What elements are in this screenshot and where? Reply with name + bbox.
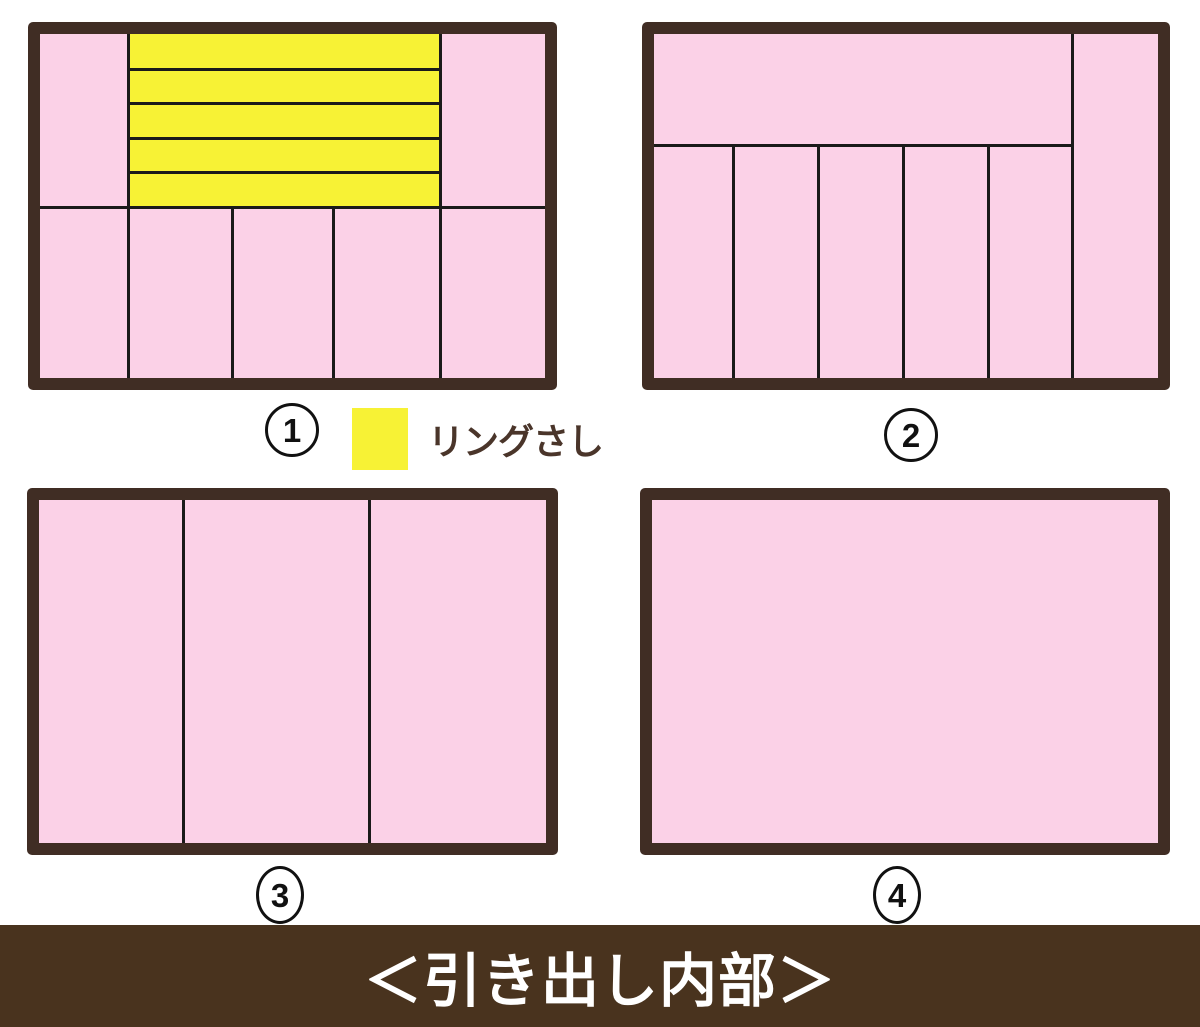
- divider-line: [128, 68, 440, 71]
- drawer-4-diagram: [640, 488, 1170, 855]
- drawer-3-diagram: [27, 488, 558, 855]
- drawer-1-number-badge: 1: [265, 403, 319, 457]
- drawer-2-number-badge: 2: [884, 408, 938, 462]
- divider-line: [368, 500, 371, 843]
- drawer-1-interior: [40, 34, 545, 378]
- divider-line: [732, 145, 735, 378]
- divider-line: [332, 207, 335, 378]
- divider-line: [231, 207, 234, 378]
- drawer-interior-diagram: 1 2 3 4 リングさし ＜引き出し内部＞: [0, 0, 1200, 1027]
- divider-line: [128, 171, 440, 174]
- divider-line: [1071, 34, 1074, 378]
- drawer-4-interior: [652, 500, 1158, 843]
- banner-title: ＜引き出し内部＞: [364, 934, 836, 1018]
- divider-line: [987, 145, 990, 378]
- divider-line: [128, 137, 440, 140]
- drawer-4-number-badge: 4: [873, 866, 921, 924]
- drawer-1-diagram: [28, 22, 557, 390]
- divider-line: [128, 102, 440, 105]
- legend-yellow-swatch: [352, 408, 408, 470]
- drawer-2-interior: [654, 34, 1158, 378]
- legend-label: リングさし: [428, 413, 603, 465]
- drawer-2-diagram: [642, 22, 1170, 390]
- drawer-3-number-badge: 3: [256, 866, 304, 924]
- divider-line: [182, 500, 185, 843]
- drawer-3-interior: [39, 500, 546, 843]
- divider-line: [902, 145, 905, 378]
- title-banner: ＜引き出し内部＞: [0, 925, 1200, 1027]
- divider-line: [817, 145, 820, 378]
- divider-line: [654, 144, 1072, 147]
- ring-holder-area: [128, 34, 440, 207]
- divider-line: [40, 206, 545, 209]
- ring-holder-legend: リングさし: [352, 408, 603, 470]
